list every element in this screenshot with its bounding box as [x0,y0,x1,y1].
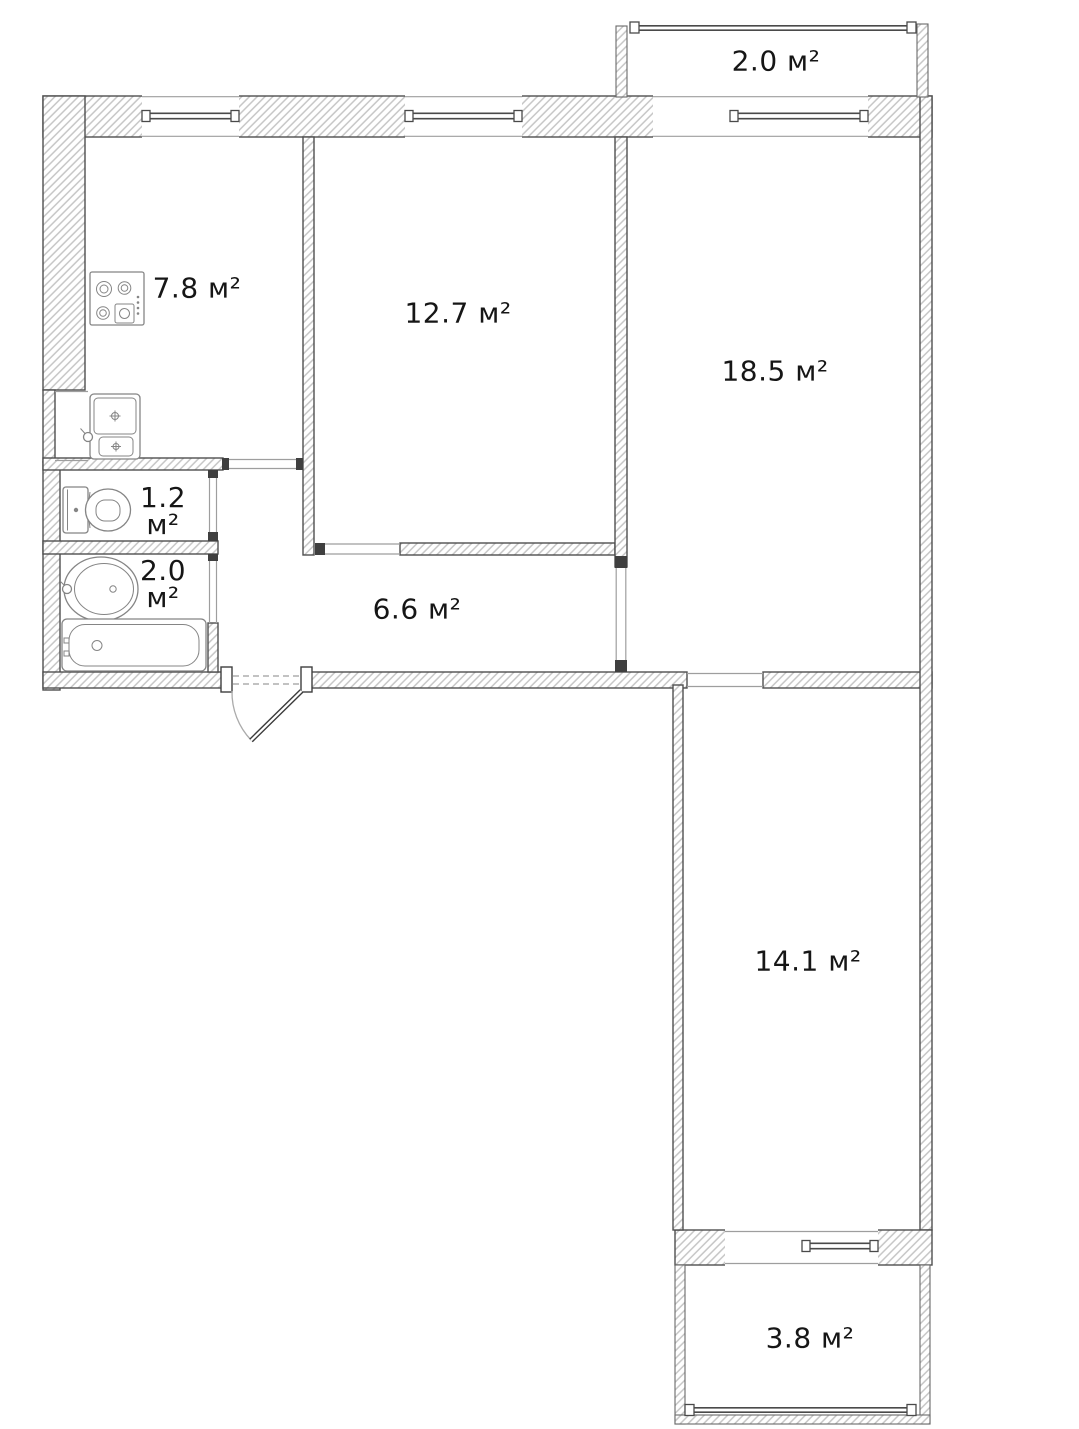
floor-plan: 2.0 м² 7.8 м² 12.7 м² 18.5 м² 1.2 м² 2.0… [0,0,1079,1429]
balcony-top-railing [630,22,916,33]
door-jamb-right [301,667,312,692]
wc-area-label: 1.2 м² [140,484,186,538]
door-jamb-left [221,667,232,692]
kitchen-sink-icon [81,394,141,459]
walls [43,24,932,1424]
door-swing-icon [232,691,302,741]
wall-room12-room18 [615,137,627,567]
bathroom-area-value: 2.0 [140,557,186,584]
wall-kitchen-room12 [303,137,314,555]
balcony-top-wall-left [616,26,627,97]
room-12-7-area-label: 12.7 м² [404,297,511,330]
wall-room12-hallway [400,543,615,555]
wall-bathroom-right [208,623,218,672]
kitchen-counter [55,392,88,461]
room-14-1-area-label: 14.1 м² [754,945,861,978]
wall-room14-left [673,685,683,1230]
wall-left-upper [43,96,85,390]
wall-kitchen-wc [43,458,223,470]
balcony-bottom-wall-right [920,1265,930,1424]
hallway-area-label: 6.6 м² [373,593,462,626]
wall-left-lower [43,462,60,690]
washbasin-icon [60,557,138,621]
wall-right-outer [920,96,932,1230]
balcony-top-wall-right [917,24,928,97]
bathroom-area-unit: м² [140,584,186,611]
wc-area-unit: м² [140,511,186,538]
balcony-bottom-wall-bottom [675,1415,930,1424]
gas-stove-icon [90,272,144,325]
wall-bottom-middle [302,672,687,688]
wc-area-value: 1.2 [140,484,186,511]
wall-left-niche [43,390,55,462]
balcony-bottom-railing [685,1405,916,1416]
balcony-bottom-wall-left [675,1265,685,1424]
toilet-icon [63,487,131,533]
wall-bottom-left [43,672,228,688]
balcony-bottom-area-label: 3.8 м² [766,1322,855,1355]
balcony-top-area-label: 2.0 м² [732,45,821,78]
floor-plan-drawing [0,0,1079,1429]
kitchen-area-label: 7.8 м² [153,272,242,305]
bathroom-area-label: 2.0 м² [140,557,186,611]
room-18-5-area-label: 18.5 м² [721,355,828,388]
entrance-door [221,667,312,741]
bathtub-icon [62,619,206,671]
wall-end-caps [208,458,627,672]
wall-bottom-right [763,672,932,688]
wall-wc-bathroom [43,541,218,554]
